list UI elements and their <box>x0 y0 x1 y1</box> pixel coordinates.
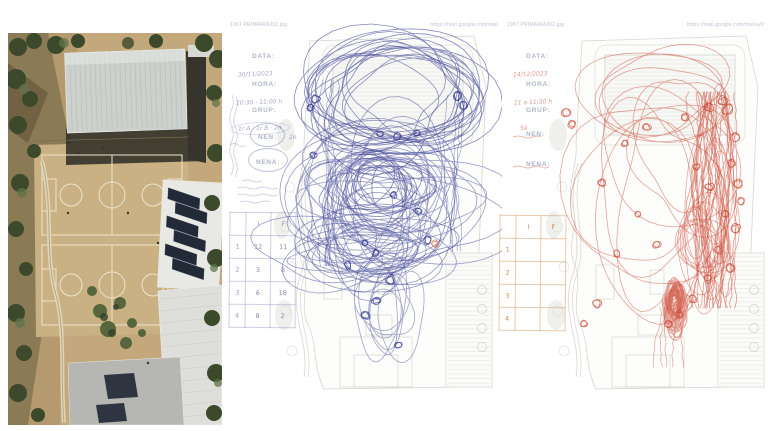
field-nena: NENA: <box>248 148 293 172</box>
observation-count-table-red: I F 1 2 3 4 <box>498 215 566 332</box>
cell <box>540 262 565 285</box>
cell <box>516 238 541 261</box>
cell <box>515 261 540 284</box>
field-nena: NENA: <box>526 153 555 171</box>
cell: 11 <box>271 236 296 259</box>
row-label: 3 <box>499 284 515 307</box>
row-label: 4 <box>499 307 515 330</box>
cell: 18 <box>270 282 295 305</box>
field-nen: NEN: <box>526 123 549 141</box>
col-header-f: F <box>541 216 566 239</box>
nena-label: NENA: <box>256 159 280 166</box>
cell: 2 <box>270 305 295 328</box>
main-building-roof <box>65 49 188 133</box>
grup-label: GRUP: <box>526 107 550 114</box>
row-label: 2 <box>229 258 245 281</box>
row-label: 2 <box>499 261 515 284</box>
cell: 12 <box>246 235 271 258</box>
nen-label: NEN: <box>526 131 545 138</box>
observation-sheet-blue: 1967 PRIMARIA302.jpg https://mail.google… <box>228 15 502 408</box>
col-header-i: I <box>246 212 271 235</box>
col-header-i: I <box>516 215 541 238</box>
cell: 6 <box>245 281 270 304</box>
data-label: DATA: <box>252 53 275 60</box>
print-header-filename: 1967 PRIMARIA302.jpg <box>230 22 287 28</box>
nen-label: NEN: <box>258 134 277 141</box>
cell <box>541 239 566 262</box>
hora-label: HORA: <box>526 81 551 88</box>
collage-canvas: 1967 PRIMARIA302.jpg https://mail.google… <box>0 0 768 431</box>
row-label: 1 <box>500 238 516 261</box>
data-label: DATA: <box>526 53 549 60</box>
nena-label: NENA: <box>526 161 550 168</box>
bottom-buildings <box>68 357 184 425</box>
cell <box>540 308 565 331</box>
cell <box>515 307 540 330</box>
observation-count-table-blue: I F 11211 238 3618 482 <box>228 212 296 329</box>
cell: 3 <box>245 258 270 281</box>
cell: 8 <box>270 259 295 282</box>
observation-sheet-red: 1967 PRIMARIA302.jpg https://mail.google… <box>505 15 768 408</box>
cell: 8 <box>245 304 270 327</box>
row-label: 1 <box>230 235 246 258</box>
row-label: 4 <box>229 304 245 327</box>
nen-handwritten-value: 2n <box>289 134 297 141</box>
row-label: 3 <box>229 281 245 304</box>
print-header-url: https://mail.google.com/mail/u/0 <box>687 22 764 28</box>
cell <box>515 284 540 307</box>
col-header-f: F <box>271 213 296 236</box>
aerial-schoolyard-photo <box>8 33 222 425</box>
cell <box>540 285 565 308</box>
hora-label: HORA: <box>252 81 277 88</box>
aerial-photo-panel <box>8 33 222 425</box>
field-nen: NEN: 2n <box>250 123 297 147</box>
print-header-url: https://mail.google.com/mail <box>430 22 498 28</box>
print-header-filename: 1967 PRIMARIA302.jpg <box>507 22 564 28</box>
grup-label: GRUP: <box>252 107 276 114</box>
